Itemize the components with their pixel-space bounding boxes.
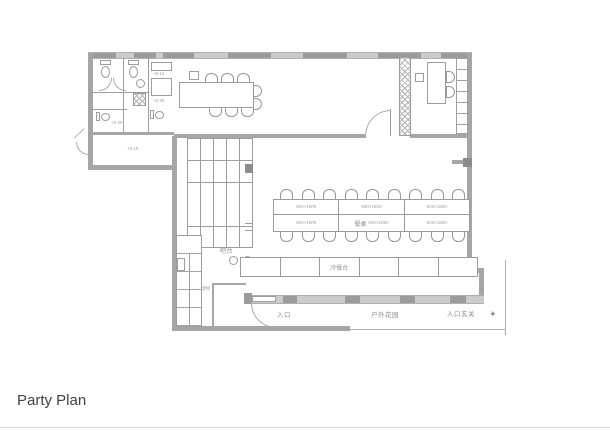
cold-buffet-counter: 冷餐台 xyxy=(240,257,478,277)
bar-stool xyxy=(229,256,238,265)
top-wall-segment xyxy=(92,53,116,58)
toilet-fixture xyxy=(129,66,138,78)
chair xyxy=(446,71,455,83)
office-desk xyxy=(427,62,446,104)
toilet-tank xyxy=(100,60,111,65)
table-cell: 600×1800 xyxy=(338,200,403,214)
buffet-cell xyxy=(280,258,320,276)
chair xyxy=(345,189,358,199)
hall-divider-wall-right xyxy=(410,134,468,138)
chair xyxy=(253,85,262,97)
chair xyxy=(388,232,401,242)
chair xyxy=(209,108,222,117)
table-dim-label: 600×1800 xyxy=(296,205,316,210)
level-annotation: +0.30 xyxy=(153,99,164,104)
bottom-wall-segment xyxy=(345,296,360,303)
grid-line xyxy=(187,226,253,227)
table-cell: 600×1800 xyxy=(274,200,338,214)
chair xyxy=(237,73,250,82)
wc-door-swing xyxy=(113,78,126,91)
entrance-foyer-label: 入口玄关 xyxy=(447,312,475,319)
hatched-column xyxy=(399,57,411,136)
chair xyxy=(225,108,238,117)
grid-line xyxy=(187,182,253,183)
storage-label: 储物 xyxy=(201,287,210,292)
bar-label: 吧台 xyxy=(220,249,233,255)
hall-door-swing xyxy=(365,110,391,136)
chair xyxy=(280,189,293,199)
chair xyxy=(366,189,379,199)
corridor-bottom-wall xyxy=(88,165,174,170)
table-dim-label: 600×1800 xyxy=(427,205,447,210)
boundary-line xyxy=(505,260,506,335)
counter-equipment xyxy=(245,164,253,173)
table-cell: 600×1800 xyxy=(274,215,338,231)
appliance xyxy=(177,258,185,271)
bottom-wall-segment xyxy=(283,296,297,303)
storage-room-wall xyxy=(212,283,214,327)
kitchen-table xyxy=(179,82,254,108)
top-wall-segment xyxy=(163,53,194,58)
buffet-cell xyxy=(359,258,399,276)
banquet-table-row-2: 600×1800 餐桌 600×1800 600×1800 xyxy=(273,214,470,232)
level-annotation: +0.30 xyxy=(111,121,122,126)
table-cell: 600×1800 xyxy=(404,200,469,214)
outdoor-garden-label: 户外花园 xyxy=(371,313,399,320)
entrance-label: 入口 xyxy=(277,313,291,320)
page-title: Party Plan xyxy=(17,392,86,409)
table-dim-label: 600×1800 xyxy=(361,205,381,210)
north-symbol-icon: ✦ xyxy=(489,310,497,319)
bottom-wall-window-band xyxy=(244,296,484,303)
chair xyxy=(452,189,465,199)
sink-fixture xyxy=(136,79,145,88)
cold-buffet-label: 冷餐台 xyxy=(330,263,348,272)
level-annotation: +0.15 xyxy=(127,147,138,152)
storage-room-wall xyxy=(212,283,246,285)
toilet-tank xyxy=(150,110,154,119)
chair xyxy=(446,86,455,98)
buffet-cell xyxy=(241,258,280,276)
chair xyxy=(221,73,234,82)
chair xyxy=(366,232,379,242)
table-cell: 餐桌 600×1800 xyxy=(338,215,403,231)
wc-partition xyxy=(123,58,124,134)
level-annotation: +0.10 xyxy=(153,72,164,77)
bar-counter-grid xyxy=(187,138,253,248)
shaft-hatch xyxy=(133,93,146,106)
bottom-wall-segment xyxy=(400,296,415,303)
bottom-wall-outline-inner xyxy=(244,303,484,304)
wall-shelving xyxy=(456,58,468,134)
grid-line xyxy=(226,138,227,248)
wc-door-swing xyxy=(99,78,112,91)
wc-cabinet xyxy=(151,62,172,71)
chair xyxy=(409,232,422,242)
page-bottom-rule xyxy=(0,427,610,428)
counter-appliance xyxy=(189,71,199,80)
top-wall-segment xyxy=(134,53,156,58)
chair xyxy=(323,232,336,242)
ground-line xyxy=(350,329,506,330)
grid-line xyxy=(200,138,201,248)
top-wall-segment xyxy=(303,53,347,58)
buffet-cell xyxy=(438,258,478,276)
entrance-door-leaf xyxy=(252,296,276,302)
chair xyxy=(431,232,444,242)
entrance-door-swing xyxy=(251,303,276,328)
table-cell: 600×1800 xyxy=(404,215,469,231)
chair xyxy=(302,232,315,242)
chair xyxy=(415,73,424,82)
dining-table-label: 餐桌 xyxy=(354,219,366,228)
chair xyxy=(345,232,358,242)
grid-line xyxy=(213,138,214,248)
table-dim-label: 600×1800 xyxy=(368,221,388,226)
top-wall-segment xyxy=(228,53,271,58)
wc-partition xyxy=(93,109,127,110)
banquet-table-row-1: 600×1800 600×1800 600×1800 xyxy=(273,199,470,215)
grid-line xyxy=(245,223,253,224)
table-dim-label: 600×1800 xyxy=(427,221,447,226)
chair xyxy=(253,98,262,110)
chair xyxy=(280,232,293,242)
grid-line xyxy=(187,160,253,161)
toilet-fixture xyxy=(101,113,110,121)
wc-corridor-wall xyxy=(93,132,174,135)
cabinet-divider xyxy=(189,253,190,327)
chair xyxy=(388,189,401,199)
toilet-tank xyxy=(96,112,100,121)
toilet-fixture xyxy=(155,111,164,119)
chair xyxy=(452,232,465,242)
chair xyxy=(323,189,336,199)
grid-line xyxy=(239,138,240,248)
buffet-cell: 冷餐台 xyxy=(319,258,359,276)
toilet-fixture xyxy=(101,66,110,78)
grid-line xyxy=(245,230,253,231)
chair xyxy=(302,189,315,199)
toilet-tank xyxy=(128,60,139,65)
break-mark xyxy=(74,128,85,139)
chair xyxy=(431,189,444,199)
table-dim-label: 600×1800 xyxy=(296,221,316,226)
floor-plan-canvas: +0.10 +0.30 +0.30 +0.15 吧台 储物 600×18 xyxy=(0,0,610,431)
column-marker xyxy=(463,158,472,167)
wc-cabinet xyxy=(151,78,172,96)
chair xyxy=(205,73,218,82)
buffet-cell xyxy=(398,258,438,276)
chair xyxy=(409,189,422,199)
bottom-wall-segment xyxy=(450,296,466,303)
corridor-door-swing xyxy=(76,142,89,155)
top-wall-outline-inner xyxy=(88,58,472,59)
wc-partition xyxy=(148,58,149,134)
